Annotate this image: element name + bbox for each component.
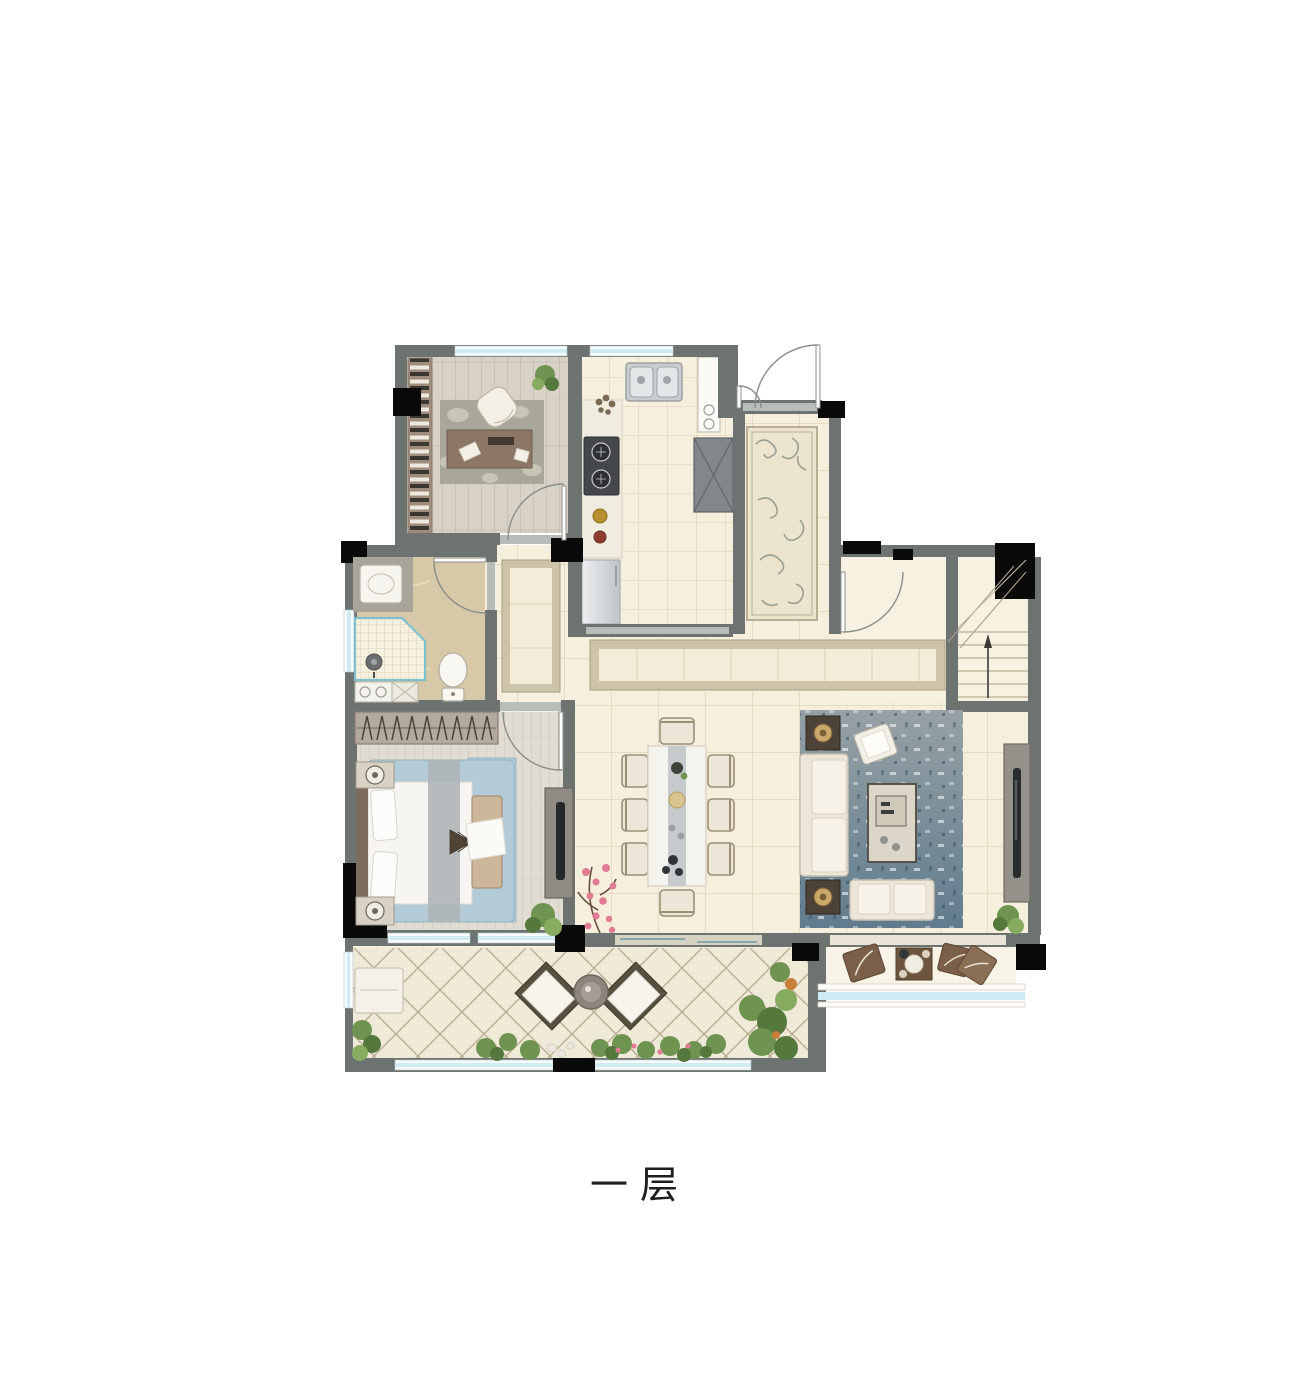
entry-hall [747,427,817,620]
dining-chairs-left [622,755,648,875]
living-bay-window [830,935,1006,945]
kitchen-window [590,346,673,356]
nightstand-bottom [356,897,394,925]
dining-chair-top [660,718,694,744]
toilet [439,653,467,701]
bed-bench [466,796,506,888]
coffee-table [868,784,916,862]
bedroom-window-2 [478,933,558,943]
sofa [800,754,848,876]
wall-niche [698,357,720,432]
terrace-table [574,975,608,1009]
bathroom-door-threshold [487,562,495,610]
headboard [356,782,368,910]
stove [584,437,619,495]
vestibule-runner [502,560,560,692]
pillow [370,789,397,841]
bedroom-window-1 [388,933,470,943]
dining-table [648,746,706,886]
bookshelf [408,358,432,534]
entry-rug [747,427,817,620]
dining-chairs-right [708,755,734,875]
desk-tray [488,437,514,445]
floor-plan-page: 一层 [0,0,1290,1400]
bedroom-tv-cabinet [545,788,573,898]
bench-throw [466,818,506,860]
bay-tea-tray [896,948,932,980]
fridge [582,560,620,624]
floor-label: 一层 [500,1154,780,1209]
laundry-counter [355,682,418,702]
loveseat [850,880,934,920]
side-table-south [806,880,840,914]
wardrobe [355,712,498,744]
kitchen-threshold [586,627,729,634]
kitchen-sink [626,363,682,401]
bedroom-door-threshold [500,702,561,711]
teapot [671,762,683,774]
jar-yellow [593,509,607,523]
bay-window-sill [818,984,1025,1007]
terrace-rail-2 [595,1060,751,1070]
dining-chair-bottom [660,890,694,916]
entry-double-door [737,345,820,408]
bathroom-sink [360,565,402,603]
corridor-runner [590,640,945,690]
jar-red [594,531,606,543]
study-window [455,346,567,356]
terrace-rail-1 [395,1060,553,1070]
plate [669,792,685,808]
terrace-left-window [344,952,353,1008]
side-table-north [806,716,840,750]
living-tv-cabinet [1004,744,1030,902]
bedroom-tv [556,802,565,880]
pillow2 [370,851,397,903]
bathroom-window [344,610,354,672]
duct-shaft [694,438,733,512]
nightstand-top [356,762,394,788]
living-tv [1013,768,1021,878]
